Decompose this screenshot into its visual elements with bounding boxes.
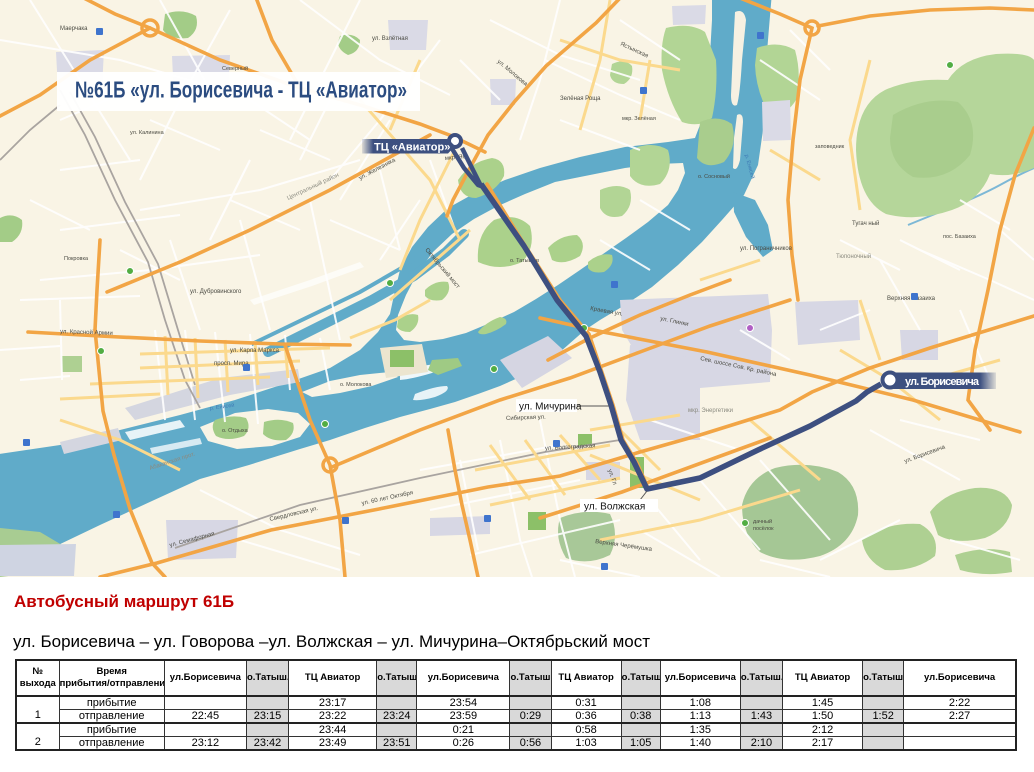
svg-text:Тюпоночный: Тюпоночный	[836, 253, 871, 260]
svg-text:о. Отдыха: о. Отдыха	[222, 428, 249, 434]
svg-text:Северный: Северный	[222, 65, 248, 72]
svg-text:ул. Борисевича: ул. Борисевича	[905, 376, 980, 388]
svg-text:Зелёная Роща: Зелёная Роща	[560, 96, 601, 102]
svg-text:мкр. Энергетики: мкр. Энергетики	[688, 408, 733, 414]
svg-text:ул. Дубровинского: ул. Дубровинского	[190, 289, 242, 295]
svg-text:заповедник: заповедник	[815, 144, 845, 150]
svg-text:о. Сосновый: о. Сосновый	[698, 173, 730, 180]
svg-text:Покровка: Покровка	[64, 256, 89, 262]
svg-text:дачный: дачный	[753, 518, 772, 525]
svg-text:мкр. Зелёная: мкр. Зелёная	[622, 116, 656, 122]
svg-text:о. Молокова: о. Молокова	[340, 382, 372, 388]
svg-text:Маерчака: Маерчака	[60, 26, 88, 32]
svg-text:пос. Базаиха: пос. Базаиха	[943, 234, 977, 240]
svg-text:Тугач ный: Тугач ный	[852, 220, 879, 227]
svg-text:ул. Карла Маркса: ул. Карла Маркса	[230, 348, 280, 354]
svg-text:ул. Волжская: ул. Волжская	[584, 502, 645, 513]
svg-text:ТЦ «Авиатор»: ТЦ «Авиатор»	[374, 142, 450, 154]
svg-text:ул. Пограничников: ул. Пограничников	[740, 246, 792, 252]
svg-text:ул. Калинина: ул. Калинина	[130, 130, 165, 136]
svg-text:ул. Взлётная: ул. Взлётная	[372, 36, 408, 42]
svg-text:№61Б «ул. Борисевича - ТЦ «Ави: №61Б «ул. Борисевича - ТЦ «Авиатор»	[75, 77, 407, 103]
svg-text:ул. Мичурина: ул. Мичурина	[519, 402, 582, 413]
svg-text:посёлок: посёлок	[753, 526, 774, 532]
